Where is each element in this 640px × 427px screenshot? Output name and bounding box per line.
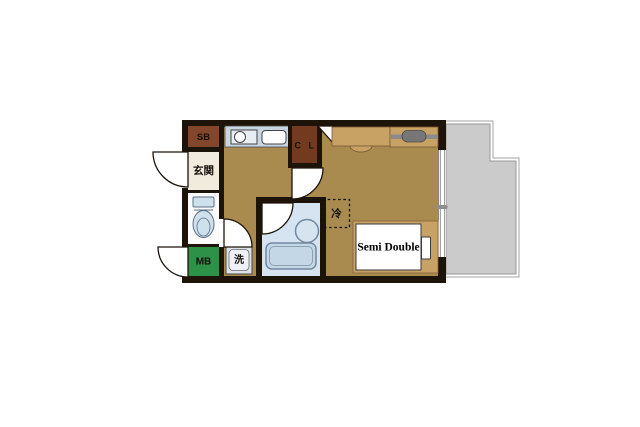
floor-plan-canvas: SB 玄関 C L 冷 Semi Double MB 洗	[0, 0, 640, 427]
entrance-door-swing	[153, 152, 188, 187]
balcony	[446, 124, 516, 274]
toilet-tank	[193, 197, 214, 207]
bed-label: Semi Double	[357, 242, 419, 254]
toilet-bowl	[193, 211, 214, 238]
washing-machine-label: 洗	[234, 253, 244, 266]
bed-pillow	[422, 237, 431, 259]
hanger-capsule	[402, 131, 426, 143]
kitchen-sink	[262, 131, 286, 145]
refrigerator-label: 冷	[331, 207, 342, 220]
bathroom-sink	[296, 220, 319, 243]
meter-box-door-swing	[158, 247, 188, 277]
stove-burner	[235, 132, 246, 143]
desk	[332, 127, 390, 146]
shoe-box-label: SB	[197, 132, 210, 143]
toilet-door-opening	[219, 219, 224, 247]
entrance-label: 玄関	[193, 164, 214, 177]
meter-box-label: MB	[196, 257, 212, 268]
closet-label: C L	[295, 141, 317, 151]
floor-plan: SB 玄関 C L 冷 Semi Double MB 洗	[0, 0, 640, 427]
window-latch	[437, 205, 448, 209]
